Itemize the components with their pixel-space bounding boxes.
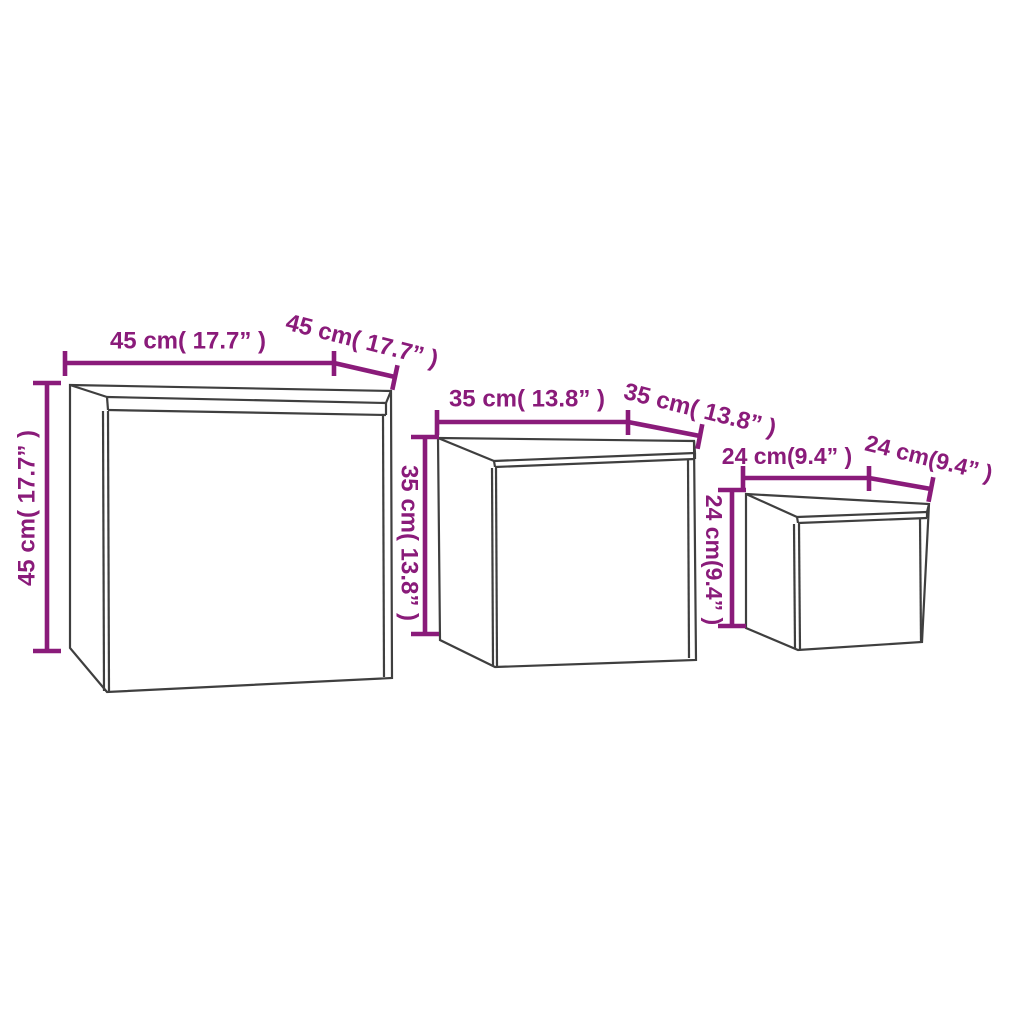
box-outline [70,385,392,692]
small-box-drawing [746,494,929,650]
medium-height-label: 35 cm( 13.8” ) [396,465,423,621]
left-panel-inner-edge [492,468,493,666]
lid-front-left-edge [797,517,798,523]
lid-right-edge [694,441,695,453]
large-width-label: 45 cm( 17.7” ) [110,328,266,355]
right-panel-inner-edge [688,460,689,658]
lid-front-left-edge [107,397,108,410]
right-panel-inner-edge [920,519,921,641]
lid-left-slant-edge [438,438,494,461]
large-height-label: 45 cm( 17.7” ) [14,430,41,586]
left-panel-thickness-edge [799,524,800,650]
depth-dimension-line [334,363,395,377]
dimension-tick [698,424,703,449]
lid-front-top-edge [797,512,927,517]
box-outline [746,494,929,650]
dimension-tick [929,477,934,502]
small-height-label: 24 cm(9.4” ) [701,495,727,625]
depth-dimension-line [628,422,700,436]
furniture-dimension-diagram: 45 cm( 17.7” ) 45 cm( 17.7” ) 45 cm( 17.… [0,0,1024,1024]
dimension-tick [392,365,397,389]
large-box-drawing [70,385,392,692]
small-width-label: 24 cm(9.4” ) [722,443,852,469]
lid-front-bottom-edge [798,518,927,523]
lid-front-left-edge [494,461,495,467]
left-panel-thickness-edge [496,468,497,666]
lid-left-slant-edge [70,385,107,397]
box-outline [438,438,696,667]
medium-box-drawing [438,438,696,667]
small-depth-label: 24 cm(9.4” ) [863,430,996,487]
left-panel-inner-edge [103,411,104,691]
right-panel-inner-edge [383,416,384,677]
depth-dimension-line [869,478,931,489]
left-panel-inner-edge [794,524,795,649]
left-panel-thickness-edge [108,411,109,691]
lid-front-bottom-edge [108,410,386,415]
medium-width-label: 35 cm( 13.8” ) [449,386,605,413]
large-box-dimensions: 45 cm( 17.7” ) 45 cm( 17.7” ) 45 cm( 17.… [14,309,441,651]
lid-front-top-edge [107,397,386,403]
